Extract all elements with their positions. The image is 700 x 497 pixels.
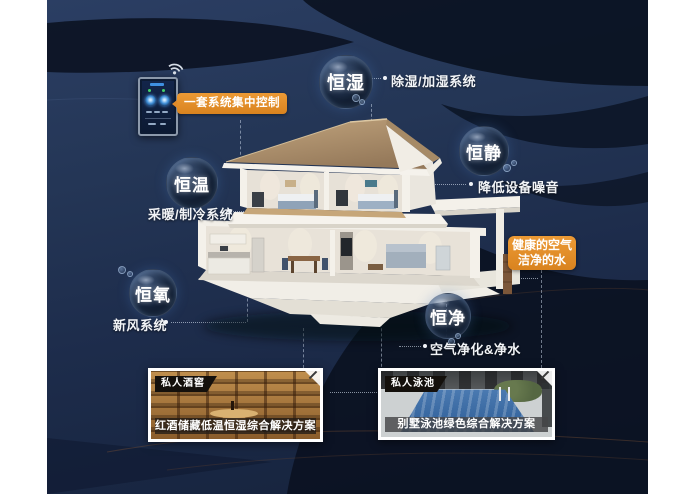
connector-dot xyxy=(164,320,168,324)
bubble-hengwen: 恒温 xyxy=(166,157,218,209)
mini-bubble xyxy=(511,160,517,166)
bubble-hengjing2: 恒净 xyxy=(425,293,471,339)
central-control-badge: 一套系统集中控制 xyxy=(177,93,287,114)
poster-page: 一套系统集中控制 恒湿 恒静 恒温 恒氧 恒净 除湿/加湿系统 降低设备噪音 采… xyxy=(0,0,700,497)
bubble-hengjing: 恒静 xyxy=(459,126,509,176)
wine-cellar-caption: 红酒储藏低温恒湿综合解决方案 xyxy=(155,418,316,434)
connector-obox-poolcard xyxy=(541,270,542,368)
control-knob-right xyxy=(159,95,170,106)
mini-bubble xyxy=(118,266,126,274)
clean-water-line: 洁净的水 xyxy=(511,253,573,268)
connector-dot xyxy=(228,209,232,213)
connector-pool-left-h xyxy=(330,392,381,393)
label-freshair: 新风系统 xyxy=(113,315,167,334)
mini-bubble xyxy=(503,164,511,172)
wine-cellar-card: 私人酒窖 红酒储藏低温恒湿综合解决方案 xyxy=(148,368,323,442)
control-knob-left xyxy=(145,95,156,106)
connector-dot xyxy=(423,344,427,348)
healthy-air-line: 健康的空气 xyxy=(511,238,573,253)
poster-stage: 一套系统集中控制 恒湿 恒静 恒温 恒氧 恒净 除湿/加湿系统 降低设备噪音 采… xyxy=(47,0,648,494)
control-panel-screen xyxy=(142,81,174,132)
wine-cellar-tag: 私人酒窖 xyxy=(155,376,217,392)
mini-bubble xyxy=(127,271,133,277)
pool-card: 私人泳池 别墅泳池绿色综合解决方案 xyxy=(378,368,555,440)
label-heating: 采暖/制冷系统 xyxy=(148,204,233,223)
bubble-hengyang: 恒氧 xyxy=(129,269,177,317)
mini-bubble xyxy=(359,99,365,105)
connector-hengshi-dot xyxy=(372,78,381,79)
healthy-air-water-box: 健康的空气 洁净的水 xyxy=(508,236,576,270)
label-purify: 空气净化&净水 xyxy=(430,339,521,358)
connector-dot xyxy=(469,182,473,186)
pool-caption: 别墅泳池绿色综合解决方案 xyxy=(385,417,548,432)
label-dehumidify: 除湿/加湿系统 xyxy=(391,71,476,90)
pool-tag: 私人泳池 xyxy=(385,376,447,392)
connector-dot xyxy=(383,76,387,80)
label-noise: 降低设备噪音 xyxy=(478,177,559,196)
